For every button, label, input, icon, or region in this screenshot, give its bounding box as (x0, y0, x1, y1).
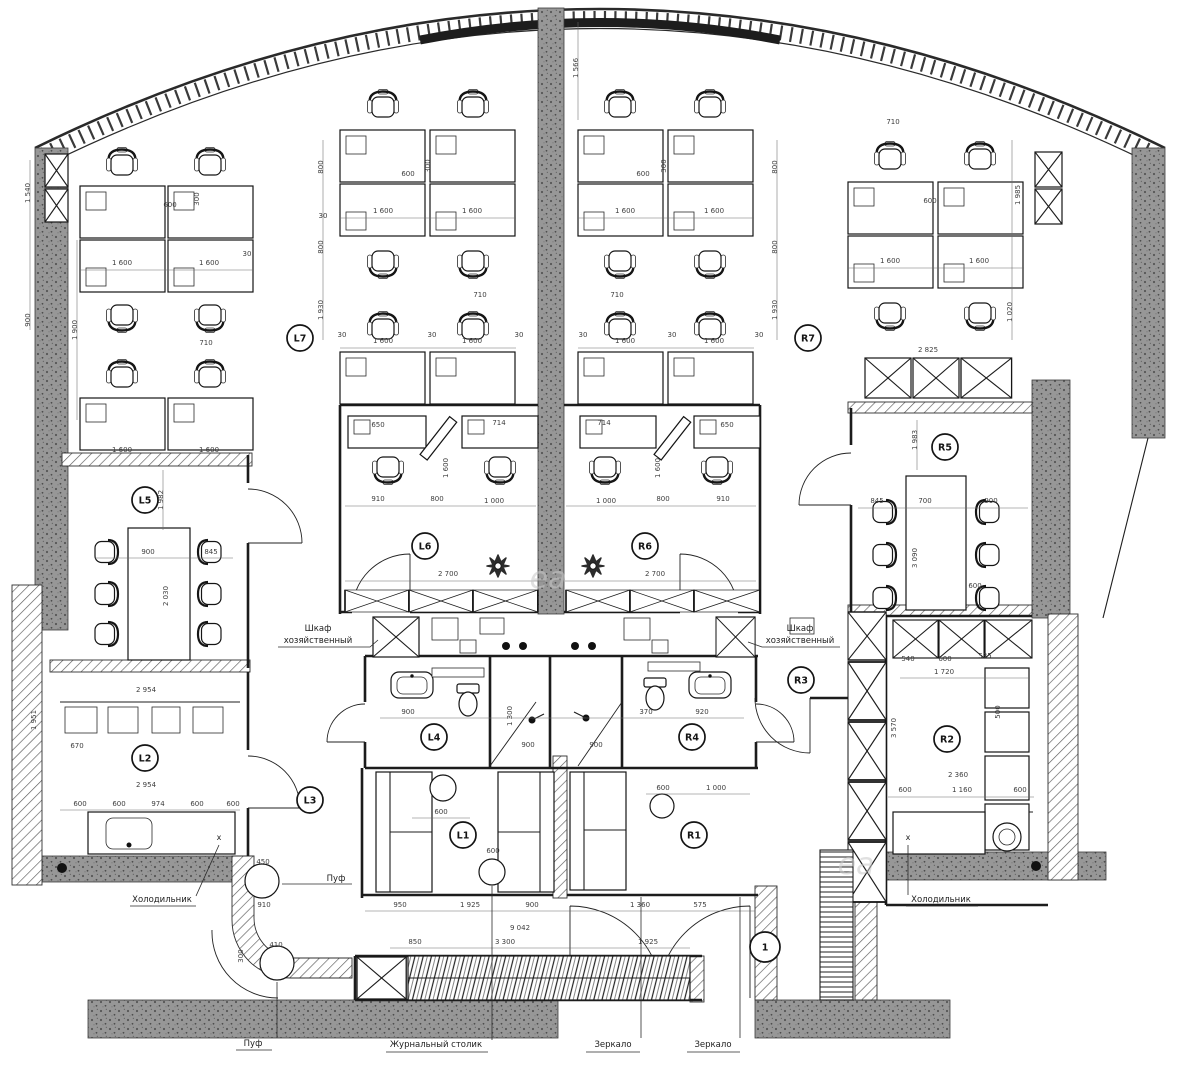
kitchen-upper-cabinet (893, 620, 938, 658)
wall-wardrobe-end (690, 956, 704, 1002)
label-utility-cabinet-right-2: хозяйственный (766, 636, 835, 646)
kitchen-sink-inner (999, 829, 1015, 845)
dimension-label: 1 020 (1006, 302, 1014, 322)
desk-monitor (854, 188, 874, 206)
column-dot (57, 863, 67, 873)
office-chair (373, 457, 404, 485)
side-table (650, 794, 674, 818)
office-chair (195, 148, 226, 176)
room-label-R4: R4 (679, 724, 705, 750)
dimension-label: 1 985 (1014, 185, 1022, 205)
dimension-label: 600 (938, 655, 951, 663)
dimension-label: 800 (430, 495, 443, 503)
desk-monitor (944, 188, 964, 206)
desk-monitor (944, 264, 964, 282)
door-l5 (248, 489, 302, 543)
sink (391, 672, 433, 698)
dimension-label: 900 (521, 741, 534, 749)
toilet (644, 678, 666, 710)
wall-right-kitchen-hatched (1048, 614, 1078, 880)
office-chair (605, 312, 636, 340)
dimension-label: 540 (901, 655, 914, 663)
meeting-chair (198, 582, 221, 606)
meeting-chair (198, 622, 221, 646)
room-id: R2 (940, 735, 954, 746)
pouf (260, 946, 294, 980)
meeting-table (128, 528, 190, 660)
dimension-label: 2 954 (136, 781, 157, 789)
shelf (432, 668, 484, 677)
office-chair (368, 312, 399, 340)
dimension-label: 1 360 (630, 901, 650, 909)
office-chair (875, 303, 906, 331)
dimension-label: 600 (486, 847, 499, 855)
wall-bottom-concrete (88, 1000, 558, 1038)
dimension-label: 650 (720, 421, 733, 429)
marker-dot (502, 642, 510, 650)
dimension-label: 1 930 (317, 300, 325, 320)
desk-monitor (674, 136, 694, 154)
appliance (985, 712, 1029, 752)
office-chair (458, 312, 489, 340)
wall-bottom-left-concrete (42, 856, 235, 882)
label-fridge-right: Холодильник (911, 895, 971, 905)
office-chair (485, 457, 516, 485)
dimension-label: 845 (870, 497, 883, 505)
dimension-label: 1 540 (24, 183, 32, 203)
storage-cabinet (865, 358, 911, 398)
dimension-label: 710 (199, 339, 212, 347)
marker-dot (588, 642, 596, 650)
dimension-label: 3 300 (495, 938, 515, 946)
dimension-label: 920 (695, 708, 708, 716)
label-utility-cabinet-left-2: хозяйственный (284, 636, 353, 646)
dimension-label: 1 600 (199, 259, 219, 267)
room-id: R4 (685, 733, 699, 744)
dimension-label: 900 (24, 313, 32, 326)
dimension-label: 1 600 (615, 337, 635, 345)
office-chair (965, 142, 996, 170)
label-coffee-table: Журнальный столик (390, 1040, 482, 1050)
room-id: 1 (762, 943, 769, 954)
meeting-chair (95, 540, 118, 564)
cabinet (432, 618, 458, 640)
floor-plan-page: x x (0, 0, 1200, 1067)
dimension-label: 1 925 (460, 901, 480, 909)
wall-right-inner-concrete (1032, 380, 1070, 618)
dimension-label: 900 (401, 708, 414, 716)
office-chair (605, 251, 636, 279)
cabinet (652, 640, 668, 653)
door-r2 (755, 698, 810, 753)
dimension-label: 1 160 (952, 786, 972, 794)
dimension-label: 2 700 (645, 570, 665, 578)
room-id: R3 (794, 676, 808, 687)
dimension-label: 950 (393, 901, 406, 909)
dimension-label: 1 000 (484, 497, 504, 505)
marker-dot (571, 642, 579, 650)
room-label-R1: R1 (681, 822, 707, 848)
desk-monitor (700, 420, 716, 434)
wall-r5-top (848, 402, 1032, 413)
office-chair (702, 457, 733, 485)
dimension-label: 900 (589, 741, 602, 749)
dimension-label: 1 000 (596, 497, 616, 505)
meeting-chair (873, 543, 896, 567)
office-chair (107, 360, 138, 388)
label-utility-cabinet-left: Шкаф (305, 624, 332, 634)
dimension-label: 1 720 (934, 668, 954, 676)
dimension-label: 2 954 (136, 686, 157, 694)
cabinet (480, 618, 504, 634)
dimension-label: 1 600 (880, 257, 900, 265)
dimension-label: 575 (693, 901, 706, 909)
plant (582, 555, 604, 577)
dimension-label: 600 (226, 800, 239, 808)
desk-monitor (346, 358, 366, 376)
storage-cabinet (913, 358, 959, 398)
dimension-label: 30 (243, 250, 252, 258)
dimension-label: 30 (319, 212, 328, 220)
dimension-label: 1 930 (771, 300, 779, 320)
dimension-label: 370 (639, 708, 652, 716)
door-l2 (248, 756, 300, 808)
desk-monitor (86, 268, 106, 286)
dimension-label: 1 600 (112, 446, 132, 454)
dimension-label: 845 (204, 548, 217, 556)
room-id: L4 (428, 733, 441, 744)
drain-dot (127, 843, 132, 848)
dimension-label: 910 (257, 901, 270, 909)
dimension-label: 714 (492, 419, 506, 427)
fridge-position-mark: x (906, 833, 911, 842)
shower-door-right (578, 702, 622, 766)
dimension-label: 900 (525, 901, 538, 909)
dimension-label: 1 900 (71, 320, 79, 340)
desk-monitor (584, 358, 604, 376)
label-pouf-2: Пуф (244, 1039, 263, 1049)
dimension-label: 30 (428, 331, 437, 339)
edge-right-slant (1103, 438, 1148, 618)
storage-cabinet (961, 358, 1012, 398)
dimension-label: 1 600 (199, 446, 219, 454)
watermark: еа (838, 847, 875, 882)
label-mirror-2: Зеркало (694, 1040, 731, 1050)
cabinet (460, 640, 476, 653)
dimension-label: 800 (317, 240, 325, 253)
office-chair (107, 305, 138, 333)
sofa (498, 772, 554, 892)
dimension-label: 1 600 (112, 259, 132, 267)
label-pouf-1: Пуф (327, 874, 346, 884)
room-id: L6 (419, 542, 432, 553)
shaft-right (1035, 152, 1062, 224)
dimension-label: 850 (408, 938, 421, 946)
wall-lounge-divider (553, 756, 567, 898)
dimension-label: 3 090 (911, 548, 919, 568)
room-id: L5 (139, 496, 152, 507)
office-chair (875, 142, 906, 170)
desk-monitor (86, 192, 106, 210)
utility-cabinet-right (716, 617, 755, 657)
dimension-label: 2 030 (162, 586, 170, 606)
dimension-label: 450 (256, 858, 269, 866)
meeting-chair (873, 586, 896, 610)
desk-monitor (854, 264, 874, 282)
dimension-label: 800 (771, 240, 779, 253)
room-label-R2: R2 (934, 726, 960, 752)
dimension-label: 700 (918, 497, 931, 505)
dimension-label: 30 (338, 331, 347, 339)
dimension-label: 500 (994, 705, 1002, 718)
dimension-label: 2 360 (948, 771, 968, 779)
coffee-table (479, 859, 505, 885)
kitchen-cabinet (193, 707, 223, 733)
dimension-label: 600 (968, 582, 981, 590)
dimension-label: 1 600 (442, 458, 450, 478)
shelf (648, 662, 700, 671)
desk-monitor (436, 136, 456, 154)
column-dot (1031, 861, 1041, 871)
meeting-chair (976, 543, 999, 567)
dimension-label: 800 (656, 495, 669, 503)
meeting-table (906, 476, 966, 610)
wall-bottom-right-concrete (755, 1000, 950, 1038)
side-table (430, 775, 456, 801)
door-r5 (799, 453, 851, 505)
dimension-label: 410 (269, 941, 282, 949)
room-label-R6: R6 (632, 533, 658, 559)
dimension-label: 600 (401, 170, 414, 178)
office-chair (368, 90, 399, 118)
desk-monitor (174, 268, 194, 286)
dimension-label: 900 (141, 548, 154, 556)
dimension-label: 3 570 (890, 718, 898, 738)
dimension-label: 1 566 (572, 57, 580, 78)
dimension-label: 1 983 (911, 430, 919, 450)
facade-dark-band (420, 23, 780, 41)
dimension-label: 710 (610, 291, 623, 299)
room-label-R5: R5 (932, 434, 958, 460)
dimension-label: 300 (424, 159, 432, 172)
room-label-L2: L2 (132, 745, 158, 771)
floor-plan-drawing: x x (0, 0, 1200, 1067)
label-fridge-left: Холодильник (132, 895, 192, 905)
dimension-label: 600 (656, 784, 669, 792)
wall-right-concrete (1132, 148, 1165, 438)
marker-dot (519, 642, 527, 650)
dimension-label: 30 (515, 331, 524, 339)
room-id: R7 (801, 334, 815, 345)
dimension-label: 650 (371, 421, 384, 429)
office-chair (605, 90, 636, 118)
dimension-label: 600 (73, 800, 86, 808)
central-column (538, 8, 564, 614)
room-id: R1 (687, 831, 701, 842)
dimension-label: 1 600 (969, 257, 989, 265)
kitchen-upper-cabinet (985, 620, 1032, 658)
room-label-L3: L3 (297, 787, 323, 813)
wall-l5-top (62, 453, 252, 466)
dimension-label: 600 (1013, 786, 1026, 794)
cabinet (624, 618, 650, 640)
wall-left-lower-hatched (12, 585, 42, 885)
desk-monitor (584, 136, 604, 154)
dimension-label: 2 700 (438, 570, 458, 578)
room-id: L3 (304, 796, 317, 807)
office-chair (695, 312, 726, 340)
wall-l5-bottom (50, 660, 250, 672)
dimension-label: 600 (112, 800, 125, 808)
dimension-label: 535 (978, 652, 991, 660)
dimension-label: 2 825 (918, 346, 938, 354)
wardrobe-cabinet (357, 957, 406, 999)
dimension-label: 1 600 (462, 337, 482, 345)
kitchen-upper-cabinet (939, 620, 984, 658)
desk-monitor (174, 192, 194, 210)
room-label-L6: L6 (412, 533, 438, 559)
office-chair (590, 457, 621, 485)
office-chair (695, 90, 726, 118)
facade-outer-arc (35, 9, 1165, 148)
room-label-L1: L1 (450, 822, 476, 848)
dimension-label: 974 (151, 800, 165, 808)
dimension-label: 710 (886, 118, 899, 126)
desk-monitor (674, 358, 694, 376)
desk-monitor (468, 420, 484, 434)
desk-monitor (674, 212, 694, 230)
desk-monitor (436, 212, 456, 230)
room-label-R7: R7 (795, 325, 821, 351)
dimension-label: 1 600 (704, 207, 724, 215)
dimension-label: 600 (898, 786, 911, 794)
kitchen-cabinet (152, 707, 180, 733)
dimension-label: 900 (984, 497, 997, 505)
dimension-label: 30 (755, 331, 764, 339)
coat-rack (654, 417, 691, 460)
sofa (376, 772, 432, 892)
desk-monitor (346, 212, 366, 230)
office-chair (695, 251, 726, 279)
meeting-chair (95, 622, 118, 646)
dimension-label: 800 (317, 160, 325, 173)
sink (689, 672, 731, 698)
dimension-label: 9 042 (510, 924, 530, 932)
room-label-1: 1 (750, 932, 780, 962)
room-label-R3: R3 (788, 667, 814, 693)
label-utility-cabinet-right: Шкаф (787, 624, 814, 634)
appliance (985, 668, 1029, 708)
fridge-position-mark: x (217, 833, 222, 842)
desk-monitor (346, 136, 366, 154)
dimension-label: 710 (473, 291, 486, 299)
pouf (245, 864, 279, 898)
room-id: L7 (294, 334, 307, 345)
plant (487, 555, 509, 577)
dimension-label: 1 600 (373, 337, 393, 345)
room-id: R6 (638, 542, 652, 553)
office-chair (195, 360, 226, 388)
desk-monitor (354, 420, 370, 434)
sofa (570, 772, 626, 890)
dimension-label: 600 (163, 201, 176, 209)
room-id: L2 (139, 754, 152, 765)
label-mirror-1: Зеркало (594, 1040, 631, 1050)
dimension-label: 800 (771, 160, 779, 173)
meeting-chair (95, 582, 118, 606)
room-label-L4: L4 (421, 724, 447, 750)
door-r4 (756, 704, 794, 742)
dimension-label: 300 (193, 192, 201, 205)
desk-monitor (584, 212, 604, 230)
dimension-label: 300 (237, 949, 245, 962)
dimension-label: 1 600 (615, 207, 635, 215)
office-chair (368, 251, 399, 279)
dimension-label: 600 (923, 197, 936, 205)
dimension-label: 30 (579, 331, 588, 339)
watermark: еа (530, 561, 567, 596)
toilet (457, 684, 479, 716)
dimension-label: 1 600 (462, 207, 482, 215)
room-id: L1 (457, 831, 470, 842)
room-id: R5 (938, 443, 952, 454)
dimension-label: 1 951 (30, 710, 38, 730)
dimension-label: 1 600 (373, 207, 393, 215)
office-chair (195, 305, 226, 333)
dimension-label: 714 (597, 419, 611, 427)
dimension-label: 1 600 (704, 337, 724, 345)
desk-monitor (174, 404, 194, 422)
kitchen-cabinet (108, 707, 138, 733)
desk-monitor (436, 358, 456, 376)
dimension-label: 910 (716, 495, 729, 503)
utility-cabinet-left (373, 617, 419, 657)
office-chair (458, 251, 489, 279)
dimension-label: 300 (660, 159, 668, 172)
dimension-label: 670 (70, 742, 83, 750)
dimension-label: 600 (190, 800, 203, 808)
dimension-label: 600 (434, 808, 447, 816)
room-label-L5: L5 (132, 487, 158, 513)
desk-monitor (86, 404, 106, 422)
dimension-label: 1 300 (506, 706, 514, 726)
kitchen-cabinet (65, 707, 97, 733)
dimension-label: 600 (636, 170, 649, 178)
dimension-label: 1 925 (638, 938, 658, 946)
dimension-label: 1 000 (706, 784, 726, 792)
door-l4 (327, 704, 365, 742)
dimension-label: 30 (668, 331, 677, 339)
office-chair (965, 303, 996, 331)
dimension-label: 1 600 (654, 458, 662, 478)
office-chair (107, 148, 138, 176)
office-chair (458, 90, 489, 118)
room-label-L7: L7 (287, 325, 313, 351)
dimension-label: 910 (371, 495, 384, 503)
